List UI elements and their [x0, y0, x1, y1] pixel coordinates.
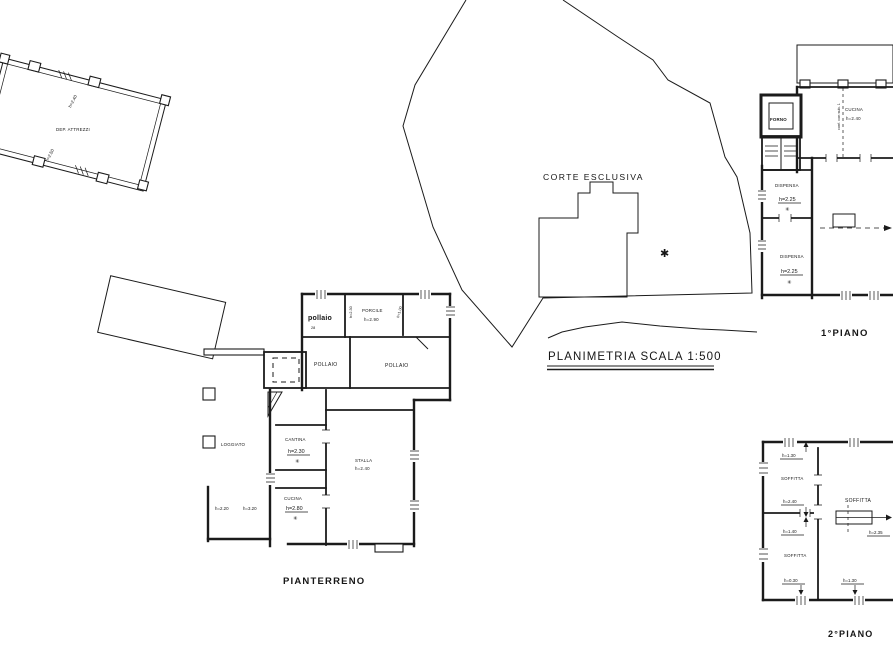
room-label-cucina-1p: CUCINA [845, 107, 863, 112]
room-note-pollaio: 28 [311, 326, 315, 330]
room-label-cucina-gf: CUCINA [284, 496, 302, 501]
room-label-dispensa-1: DISPENSA [775, 183, 799, 188]
room-height-cucina-1p: h=2.40 [846, 116, 861, 121]
dim-soffitta-nw-bottom: h=2.40 [783, 499, 797, 504]
caption-first-floor: 1°PIANO [821, 328, 869, 339]
room-label-stalla: STALLA [355, 458, 372, 463]
dim-corridor-b: h=3.20 [243, 506, 257, 511]
room-height-porcile: h=2.90 [364, 317, 379, 322]
dim-porcile-left: h=2.30 [349, 306, 353, 318]
room-label-pollaio-small: POLLAIO [314, 362, 338, 368]
tree-marker: ✱ [660, 248, 669, 260]
room-label-pollaio-large: POLLAIO [385, 363, 409, 369]
room-label-forno: FORNO [770, 117, 787, 122]
dim-soffitta-main-bottom: h=1.30 [843, 578, 857, 583]
caption-second-floor: 2°PIANO [828, 629, 874, 639]
dim-soffitta-nw-top: h=1.30 [782, 453, 796, 458]
room-height-cantina: h=2.30 [288, 449, 305, 455]
dim-soffitta-sw-bottom: h=0.30 [784, 578, 798, 583]
room-height-dispensa-2: h=2.25 [781, 269, 798, 275]
note-marker-dispensa-2: ✳ [787, 279, 792, 286]
drawing-title: PLANIMETRIA SCALA 1:500 [548, 351, 722, 363]
room-label-cantina: CANTINA [285, 437, 306, 442]
caption-ground-floor: PIANTERRENO [283, 576, 365, 587]
cadastral-floor-plan-drawing: DEP. ATTREZZI h=2.40 h=2.50 CORTE ESCLUS… [0, 0, 893, 670]
room-label-porcile: PORCILE [362, 308, 383, 313]
room-height-stalla: h=2.40 [355, 466, 370, 471]
room-label-soffitta-nw: SOFFITTA [781, 476, 804, 481]
dim-soffitta-sw-top: h=1.40 [783, 529, 797, 534]
room-label-loggiato: LOGGIATO [221, 442, 246, 447]
dim-soffitta-main-stair: h=2.35 [869, 530, 883, 535]
boundary-annotation: conf. con sub. 1 [837, 103, 841, 130]
tool-shed-label: DEP. ATTREZZI [56, 127, 90, 132]
room-label-pollaio-main: pollaio [308, 315, 332, 322]
room-label-soffitta-sw: SOFFITTA [784, 553, 807, 558]
dim-corridor-a: h=2.20 [215, 506, 229, 511]
room-label-soffitta-main: SOFFITTA [845, 498, 872, 504]
note-marker-dispensa-1: ✳ [785, 206, 790, 213]
note-marker-cucina-gf: ✳ [293, 515, 298, 522]
courtyard-label: CORTE ESCLUSIVA [543, 172, 644, 182]
note-marker-cantina: ✳ [295, 458, 300, 465]
room-height-dispensa-1: h=2.25 [779, 197, 796, 203]
paper-background [0, 0, 893, 670]
room-height-cucina-gf: h=2.80 [286, 506, 303, 512]
room-label-dispensa-2: DISPENSA [780, 254, 804, 259]
